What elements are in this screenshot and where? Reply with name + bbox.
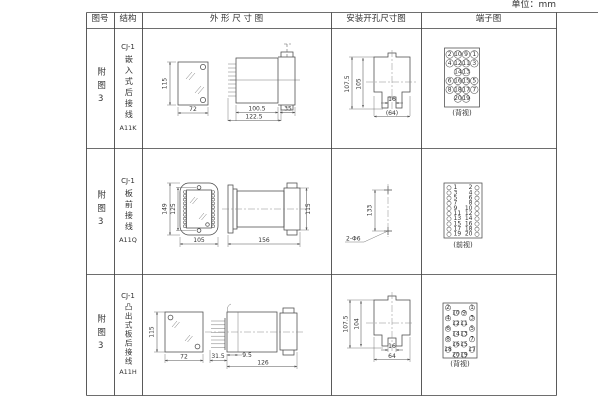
terminal-number: 14 <box>452 330 460 337</box>
fig-label: 附图3 <box>95 190 104 232</box>
terminal-number: 18 <box>444 346 452 353</box>
terminal-number: 8 <box>446 336 450 343</box>
header-col-fig: 图号 <box>86 15 114 24</box>
terminal-circle <box>475 227 479 231</box>
terminal-number: 19 <box>462 95 470 102</box>
terminal-circle <box>183 206 186 209</box>
terminal-circle <box>475 206 479 210</box>
terminal-circle <box>212 213 215 216</box>
row3-hole-drawing: 107.5 104 16 64 <box>343 292 415 362</box>
terminal-number: 15 <box>460 341 468 348</box>
terminal-circle <box>212 217 215 220</box>
terminal-circle <box>475 232 479 236</box>
header-col-outline: 外 形 尺 寸 图 <box>142 15 331 24</box>
terminal-circle <box>183 213 186 216</box>
terminal-circle <box>447 196 451 200</box>
terminal-number: 6 <box>446 325 450 332</box>
terminal-circle <box>183 202 186 205</box>
terminal-circle <box>183 191 186 194</box>
terminal-circle <box>183 210 186 213</box>
terminal-number: 18 <box>454 86 462 93</box>
terminal-circle <box>475 186 479 190</box>
dim-label: 35 <box>284 106 292 113</box>
terminal-number: 20 <box>454 95 462 102</box>
terminal-number: 5 <box>472 78 476 85</box>
terminal-number: 12 <box>454 60 462 67</box>
terminal-circle <box>447 212 451 216</box>
terminal-number: 6 <box>448 78 452 85</box>
terminal-number: 2 <box>446 304 450 311</box>
dim-label: 133 <box>367 205 374 217</box>
dim-label: 115 <box>305 203 312 215</box>
row1-terminal-view-label: (背视) <box>427 110 497 118</box>
terminal-number: 9 <box>462 309 466 316</box>
dim-label: 156 <box>258 237 270 244</box>
dim-label: 16 <box>388 343 396 350</box>
header-col-hole: 安装开孔尺寸图 <box>331 15 421 24</box>
terminal-circle <box>475 191 479 195</box>
row2-fig-number: 附图3 <box>86 148 114 274</box>
terminal-circle <box>212 206 215 209</box>
terminal-number: 14 <box>454 69 462 76</box>
terminal-circle <box>475 222 479 226</box>
dim-label: 9.5 <box>242 352 252 359</box>
terminal-number: 11 <box>462 60 470 67</box>
terminal-number: 11 <box>460 320 468 327</box>
row2-terminal-diagram: 1357911131517192468101214161820 <box>444 183 482 238</box>
dim-label: 100.5 <box>248 106 265 113</box>
dim-label: 31.5 <box>211 353 225 360</box>
terminal-circle <box>447 222 451 226</box>
row1-terminal-diagram: 2109141211314136161558181772019 <box>445 48 480 107</box>
dim-label: 104 <box>354 318 361 330</box>
row1-outline-drawing: 115 72 100.5 35 122.5 <box>162 44 301 121</box>
model-label: A11Q <box>119 237 137 244</box>
dim-label: 72 <box>180 354 188 361</box>
terminal-circle <box>183 225 186 228</box>
terminal-number: 8 <box>448 86 452 93</box>
terminal-circle <box>212 191 215 194</box>
terminal-circle <box>447 186 451 190</box>
terminal-number: 4 <box>448 60 452 67</box>
terminal-circle <box>212 225 215 228</box>
terminal-number: 19 <box>454 231 462 238</box>
model-label: A11H <box>119 369 137 376</box>
row1-structure: CJ-1 嵌入式后接线 A11K <box>114 28 142 148</box>
fig-label: 附图3 <box>95 67 104 109</box>
terminal-number: 3 <box>472 60 476 67</box>
series-label: CJ-1 <box>121 178 135 186</box>
row3-fig-number: 附图3 <box>86 274 114 395</box>
terminal-circle <box>212 194 215 197</box>
dim-label: 107.5 <box>343 315 350 332</box>
terminal-number: 10 <box>452 309 460 316</box>
fig-label: 附图3 <box>95 314 104 356</box>
terminal-number: 16 <box>454 78 462 85</box>
terminal-number: 7 <box>472 86 476 93</box>
dim-label: 16 <box>388 96 396 103</box>
terminal-number: 4 <box>446 315 450 322</box>
terminal-circle <box>475 212 479 216</box>
terminal-circle <box>183 194 186 197</box>
dim-label: 149 <box>162 203 169 215</box>
terminal-circle <box>183 198 186 201</box>
terminal-number: 17 <box>468 346 476 353</box>
terminal-circle <box>447 201 451 205</box>
terminal-circle <box>183 217 186 220</box>
dim-label: 115 <box>162 78 169 90</box>
terminal-number: 7 <box>470 336 474 343</box>
terminal-circle <box>447 191 451 195</box>
dim-label: 72 <box>189 106 197 113</box>
terminal-number: 19 <box>460 351 468 358</box>
series-label: CJ-1 <box>121 293 135 301</box>
structure-label: 嵌入式后接线 <box>124 55 133 121</box>
header-col-terminal: 端子图 <box>421 15 556 24</box>
dim-label: 105 <box>356 78 363 90</box>
terminal-circle <box>447 227 451 231</box>
terminal-number: 3 <box>470 315 474 322</box>
dim-label: 122.5 <box>245 114 262 121</box>
dim-label: 126 <box>257 360 269 367</box>
dim-label: 125 <box>170 203 177 215</box>
terminal-number: 13 <box>462 69 470 76</box>
document-page: 115 72 100.5 35 122.5 107.5 105 16 (64) <box>0 0 600 400</box>
dim-label: 115 <box>149 326 156 338</box>
row2-hole-drawing: 133 2-Φ6 <box>345 184 392 243</box>
hole-callout-label: 2-Φ6 <box>346 236 361 243</box>
dim-label: 107.5 <box>344 75 351 92</box>
row2-outline-drawing: 149 125 105 156 115 <box>162 183 313 247</box>
terminal-number: 1 <box>472 51 476 58</box>
model-label: A11K <box>120 125 137 132</box>
terminal-circle <box>475 217 479 221</box>
terminal-number: 10 <box>454 51 462 58</box>
terminal-circle <box>447 232 451 236</box>
series-label: CJ-1 <box>121 44 135 52</box>
row3-terminal-diagram: 2104126148161820193115137151719 <box>443 303 477 358</box>
dim-label: (64) <box>386 110 398 117</box>
terminal-number: 12 <box>452 320 460 327</box>
terminal-number: 5 <box>470 325 474 332</box>
row3-structure: CJ-1 凸出式板后接线 A11H <box>114 274 142 395</box>
terminal-circle <box>475 201 479 205</box>
header-col-structure: 结构 <box>114 15 142 24</box>
dim-label: 105 <box>193 237 205 244</box>
terminal-circle <box>212 210 215 213</box>
structure-label: 凸出式板后接线 <box>124 303 132 366</box>
terminal-circle <box>475 196 479 200</box>
row3-terminal-view-label: (背视) <box>425 361 495 369</box>
terminal-number: 13 <box>460 330 468 337</box>
row3-outline-drawing: 115 72 31.5 9.5 126 <box>149 304 306 369</box>
terminal-circle <box>212 202 215 205</box>
terminal-number: 20 <box>452 351 460 358</box>
unit-label: 单位：mm <box>511 1 556 11</box>
terminal-circle <box>183 221 186 224</box>
terminal-circle <box>447 206 451 210</box>
terminal-circle <box>212 198 215 201</box>
dim-label: 64 <box>388 353 396 360</box>
terminal-number: 16 <box>452 341 460 348</box>
row1-hole-drawing: 107.5 105 16 (64) <box>344 50 416 117</box>
terminal-number: 20 <box>465 231 473 238</box>
row2-structure: CJ-1 板前接线 A11Q <box>114 148 142 274</box>
row1-fig-number: 附图3 <box>86 28 114 148</box>
terminal-circle <box>212 221 215 224</box>
terminal-circle <box>447 217 451 221</box>
row2-terminal-view-label: (前视) <box>428 242 498 250</box>
terminal-number: 9 <box>464 51 468 58</box>
terminal-number: 15 <box>462 78 470 85</box>
terminal-number: 17 <box>462 86 470 93</box>
terminal-number: 1 <box>470 304 474 311</box>
terminal-number: 2 <box>448 51 452 58</box>
structure-label: 板前接线 <box>124 189 133 233</box>
